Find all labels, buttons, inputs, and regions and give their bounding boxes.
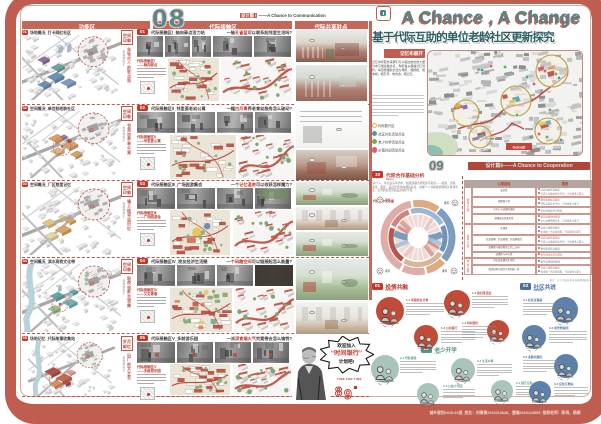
svg-text:老年: 老年	[384, 269, 391, 273]
svg-text:青年: 青年	[442, 269, 448, 273]
svg-text:8: 8	[335, 384, 342, 399]
svg-text:老年: 老年	[384, 198, 391, 202]
svg-text:9: 9	[344, 386, 352, 401]
svg-text:青年: 青年	[444, 201, 450, 205]
svg-text:GocaD: GocaD	[513, 145, 526, 150]
